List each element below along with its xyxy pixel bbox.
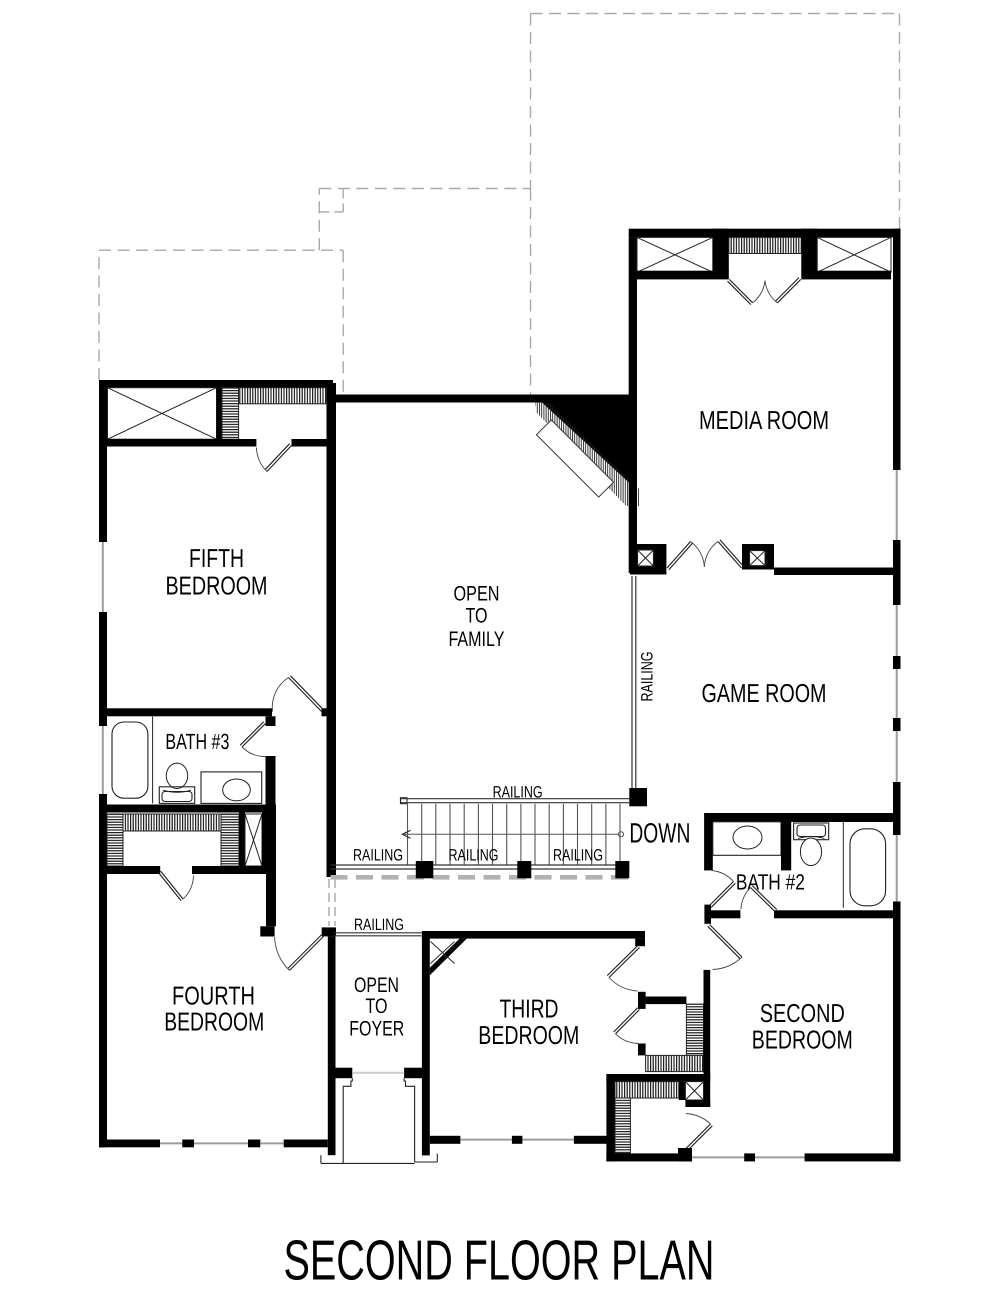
svg-text:TO: TO bbox=[366, 995, 388, 1018]
svg-text:BEDROOM: BEDROOM bbox=[478, 1020, 579, 1050]
svg-text:RAILING: RAILING bbox=[493, 783, 543, 801]
svg-text:SECOND FLOOR PLAN: SECOND FLOOR PLAN bbox=[284, 1228, 715, 1291]
svg-text:TO: TO bbox=[466, 605, 488, 628]
svg-text:RAILING: RAILING bbox=[353, 846, 403, 864]
svg-text:OPEN: OPEN bbox=[354, 974, 399, 997]
svg-text:RAILING: RAILING bbox=[553, 846, 603, 864]
svg-text:BEDROOM: BEDROOM bbox=[164, 1006, 264, 1036]
svg-text:BEDROOM: BEDROOM bbox=[752, 1025, 853, 1055]
svg-text:FAMILY: FAMILY bbox=[449, 628, 505, 651]
svg-text:SECOND: SECOND bbox=[760, 998, 845, 1028]
svg-text:DOWN: DOWN bbox=[629, 818, 690, 849]
svg-text:FIFTH: FIFTH bbox=[189, 543, 244, 573]
svg-text:OPEN: OPEN bbox=[454, 583, 500, 606]
svg-text:RAILING: RAILING bbox=[639, 652, 657, 702]
svg-text:BEDROOM: BEDROOM bbox=[166, 571, 268, 601]
svg-text:BATH #3: BATH #3 bbox=[165, 729, 229, 754]
svg-text:FOYER: FOYER bbox=[349, 1018, 404, 1041]
svg-text:THIRD: THIRD bbox=[500, 994, 559, 1024]
svg-text:BATH #2: BATH #2 bbox=[736, 870, 805, 895]
svg-text:GAME ROOM: GAME ROOM bbox=[702, 678, 827, 708]
svg-text:MEDIA ROOM: MEDIA ROOM bbox=[699, 405, 829, 435]
svg-text:RAILING: RAILING bbox=[354, 916, 404, 934]
svg-text:RAILING: RAILING bbox=[449, 846, 499, 864]
